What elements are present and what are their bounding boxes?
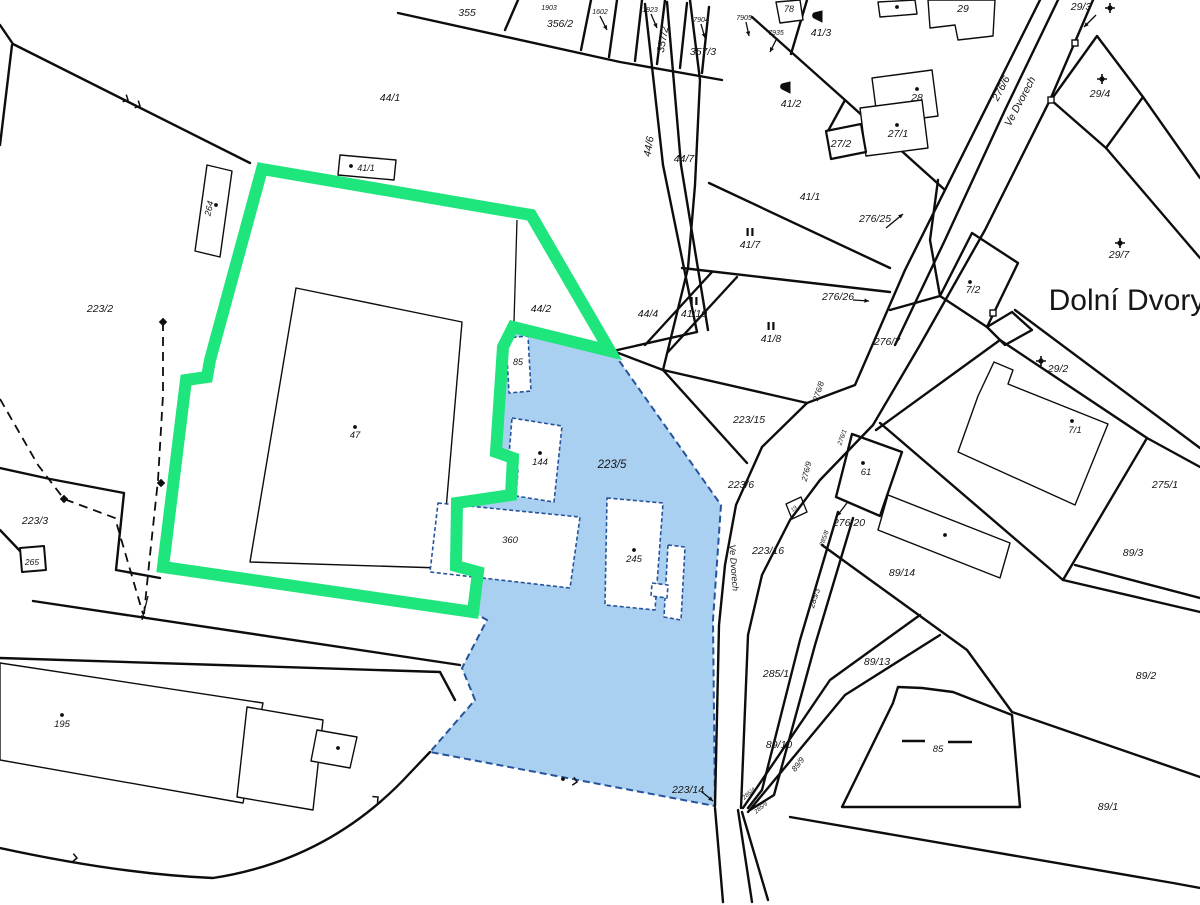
map-label: 195 <box>54 719 71 730</box>
map-label: 85 <box>933 744 944 755</box>
house-dot-icon <box>561 777 565 781</box>
map-label: 276/20 <box>832 517 865 529</box>
map-label: 275/1 <box>1151 479 1178 491</box>
house-dot-icon <box>943 533 947 537</box>
diamond-marker-icon <box>159 318 167 326</box>
map-label: 61 <box>861 467 872 478</box>
house-dot-icon <box>349 164 353 168</box>
map-label: 7/2 <box>966 284 981 296</box>
map-label: 360 <box>502 535 519 546</box>
house-dot-icon <box>968 280 972 284</box>
map-label: 265 <box>24 557 39 567</box>
map-label: 41/3 <box>811 27 832 39</box>
map-label: 223/3 <box>21 515 48 527</box>
arrow-icon <box>651 14 657 28</box>
arrow-icon <box>837 503 847 516</box>
arrow-icon <box>141 596 148 620</box>
map-label: 41/8 <box>761 333 782 345</box>
map-label: 89/13 <box>864 656 890 668</box>
arrow-icon <box>746 22 750 36</box>
map-label: 356/2 <box>547 18 573 30</box>
map-label: 144 <box>532 457 548 468</box>
map-label: 41/1 <box>357 163 375 173</box>
map-label: 357/3 <box>690 46 716 58</box>
map-label: 27/1 <box>887 128 908 140</box>
map-label: 29/3 <box>1070 1 1092 13</box>
boundary-marker-icon <box>1048 97 1054 103</box>
arrow-icon <box>701 24 706 38</box>
map-label: 223/5 <box>597 459 627 471</box>
double-bar-icon <box>768 322 775 330</box>
cadastral-map: 355356/2357/2357/31903160219237904790579… <box>0 0 1200 905</box>
map-label: 44/1 <box>380 92 400 104</box>
diamond-marker-icon <box>60 495 68 503</box>
map-label: 44/4 <box>638 308 659 320</box>
map-label: 245 <box>625 554 643 565</box>
map-label: 1602 <box>592 9 608 16</box>
map-label: 1903 <box>541 5 557 12</box>
house-dot-icon <box>214 203 218 207</box>
map-label: Ve Dvorech <box>727 544 740 591</box>
house-dot-icon <box>60 713 64 717</box>
boundary-marker-icon <box>1072 40 1078 46</box>
house-dot-icon <box>895 5 899 9</box>
house-dot-icon <box>895 123 899 127</box>
map-label: 89/14 <box>889 567 915 579</box>
double-bar-icon <box>747 228 754 236</box>
map-label: 7904 <box>693 17 709 24</box>
house-dot-icon <box>632 548 636 552</box>
map-label: 44/6 <box>641 135 656 157</box>
map-label: 89/2 <box>1136 670 1157 682</box>
house-dot-icon <box>353 425 357 429</box>
map-label: 89/10 <box>766 739 792 751</box>
map-label: 89/3 <box>1123 547 1144 559</box>
map-label: 19 <box>790 505 799 514</box>
map-label: 29 <box>956 3 969 15</box>
cross-icon <box>1097 74 1107 84</box>
map-label: 223/14 <box>671 784 704 796</box>
house-dot-icon <box>336 746 340 750</box>
map-label: 223/6 <box>727 479 754 491</box>
map-label: 7/1 <box>1068 425 1081 436</box>
map-label: 41/7 <box>740 239 762 251</box>
map-label: 41/10 <box>681 308 707 320</box>
map-label: 285/3 <box>807 587 822 610</box>
arrow-icon <box>853 299 869 303</box>
map-label: 223/15 <box>732 414 765 426</box>
arrow-icon <box>600 16 607 30</box>
map-label: Dolní Dvory <box>1049 284 1200 317</box>
map-label: 29/4 <box>1089 88 1111 100</box>
map-label: 285/1 <box>762 668 789 680</box>
map-label: 223/2 <box>86 303 113 315</box>
map-label: 27/2 <box>830 138 852 150</box>
map-label: 355 <box>458 7 476 19</box>
map-label: 276/1 <box>836 428 849 447</box>
map-label: 276/25 <box>858 213 891 225</box>
map-label: 44/7 <box>674 153 696 165</box>
map-label: 276/9 <box>800 460 814 483</box>
flag-icon <box>781 82 790 93</box>
map-label: 41/1 <box>800 191 820 203</box>
map-label: 1923 <box>642 7 658 14</box>
map-label: 89/1 <box>1098 801 1118 813</box>
map-label: 44/2 <box>531 303 552 315</box>
map-label: 7905 <box>736 15 752 22</box>
map-label: 78 <box>784 4 794 14</box>
house-dot-icon <box>861 461 865 465</box>
map-canvas: 355356/2357/2357/31903160219237904790579… <box>0 0 1200 905</box>
boundary-marker-icon <box>990 310 996 316</box>
map-label: 276/7 <box>873 336 901 348</box>
map-label: 85 <box>513 357 524 367</box>
arrow-icon <box>770 38 777 52</box>
house-dot-icon <box>915 87 919 91</box>
cross-icon <box>1115 238 1125 248</box>
map-label: 41/2 <box>781 98 802 110</box>
map-label: 28 <box>910 92 923 104</box>
map-label: 276/26 <box>821 291 854 303</box>
house-dot-icon <box>1070 419 1074 423</box>
flag-icon <box>813 11 822 22</box>
cross-icon <box>1105 3 1115 13</box>
map-label: 29/2 <box>1047 363 1069 375</box>
direction-tick-icon <box>73 854 78 862</box>
double-bar-icon <box>691 297 698 305</box>
map-label: 47 <box>350 430 361 441</box>
map-label: 7935 <box>768 30 784 37</box>
house-dot-icon <box>538 451 542 455</box>
map-label: 276/8 <box>811 380 826 403</box>
map-label: 223/16 <box>751 545 784 557</box>
map-label: 29/7 <box>1108 249 1131 261</box>
map-label: 357/2 <box>655 25 671 53</box>
